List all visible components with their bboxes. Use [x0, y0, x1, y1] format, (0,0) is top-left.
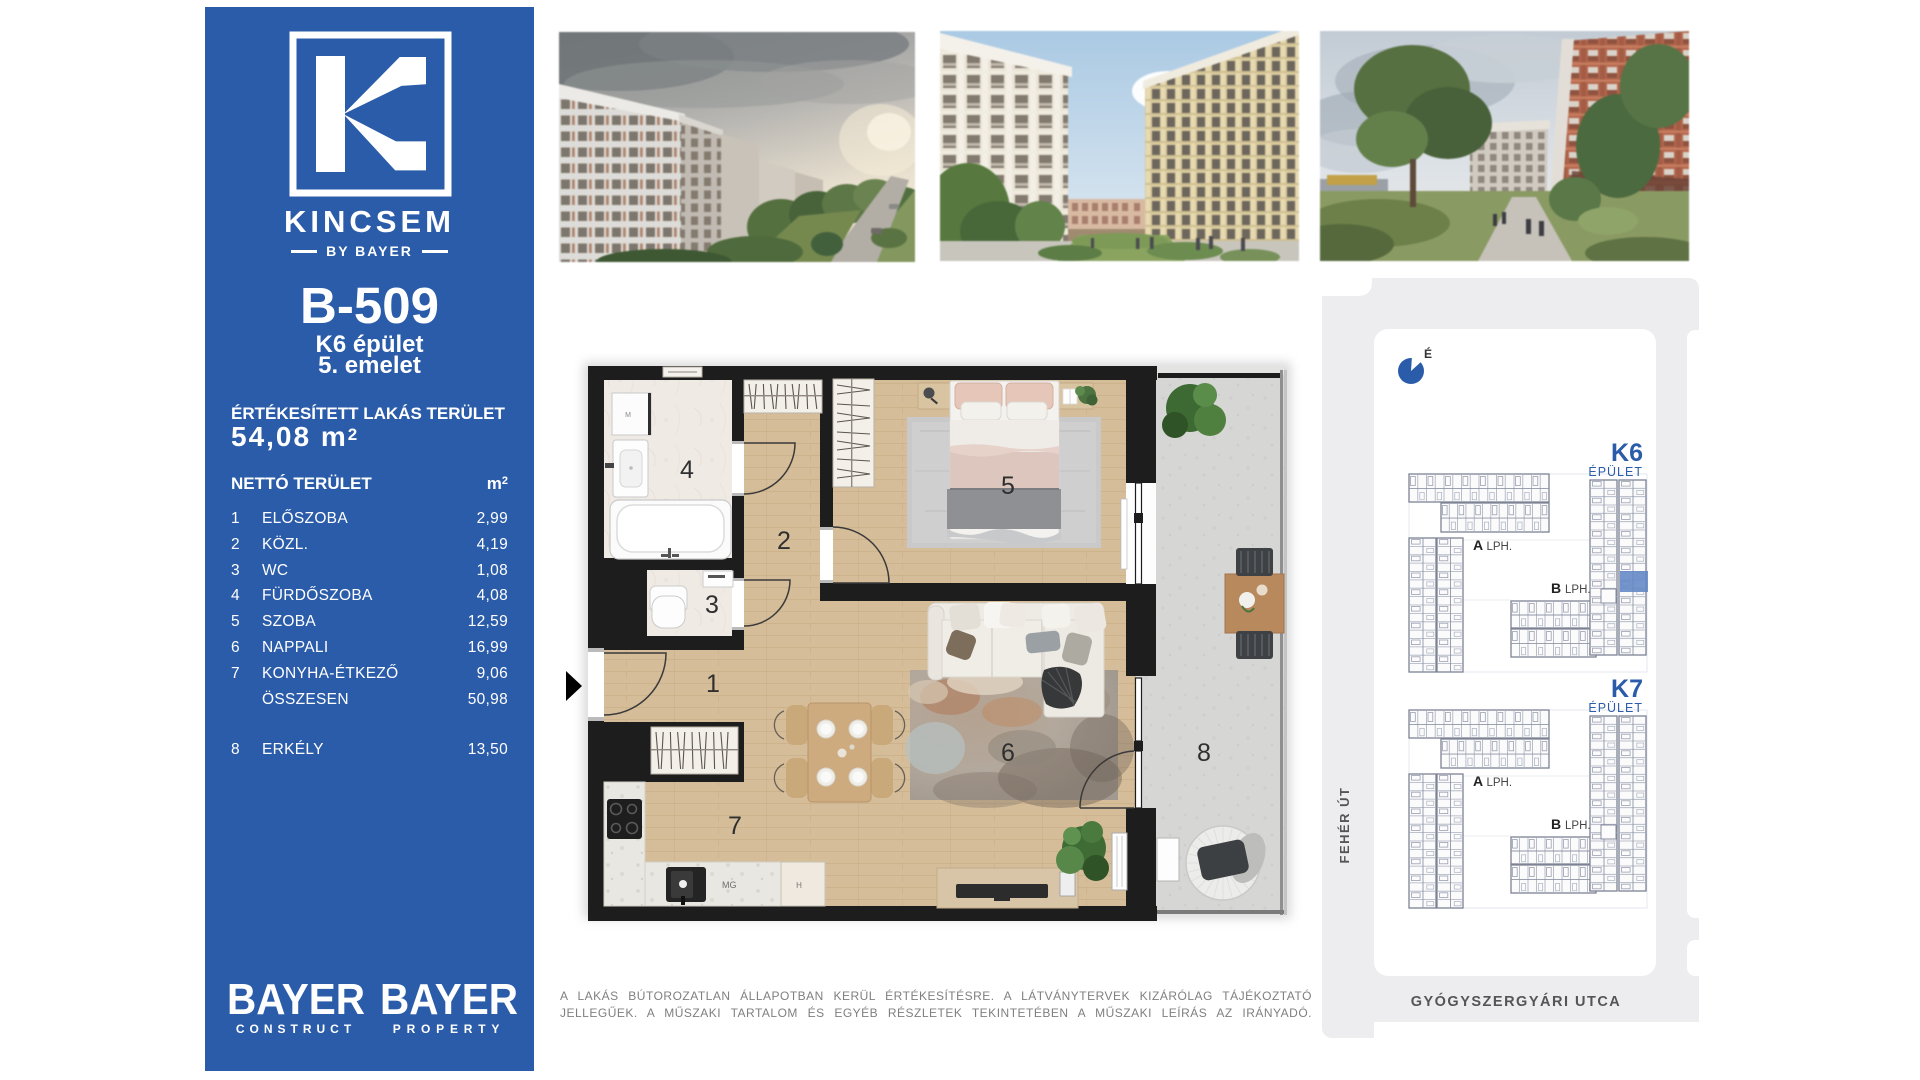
svg-text:8: 8	[1197, 739, 1211, 767]
svg-text:FEHÉR ÚT: FEHÉR ÚT	[1337, 787, 1352, 864]
svg-text:ÉPÜLET: ÉPÜLET	[1588, 700, 1643, 715]
svg-text:6: 6	[1001, 739, 1015, 767]
svg-text:M: M	[625, 412, 631, 419]
svg-text:K7: K7	[1611, 675, 1643, 703]
svg-text:1: 1	[706, 670, 720, 698]
svg-text:3: 3	[705, 591, 719, 619]
svg-text:4: 4	[680, 456, 694, 484]
svg-text:5: 5	[1001, 472, 1015, 500]
svg-text:7: 7	[728, 812, 742, 840]
svg-text:GYÓGYSZERGYÁRI UTCA: GYÓGYSZERGYÁRI UTCA	[1411, 992, 1622, 1010]
svg-text:H: H	[796, 881, 802, 890]
svg-text:MG: MG	[722, 880, 737, 890]
svg-text:2: 2	[777, 527, 791, 555]
svg-text:ÉPÜLET: ÉPÜLET	[1588, 464, 1643, 479]
svg-text:K6: K6	[1611, 439, 1643, 467]
svg-text:É: É	[1424, 346, 1432, 361]
